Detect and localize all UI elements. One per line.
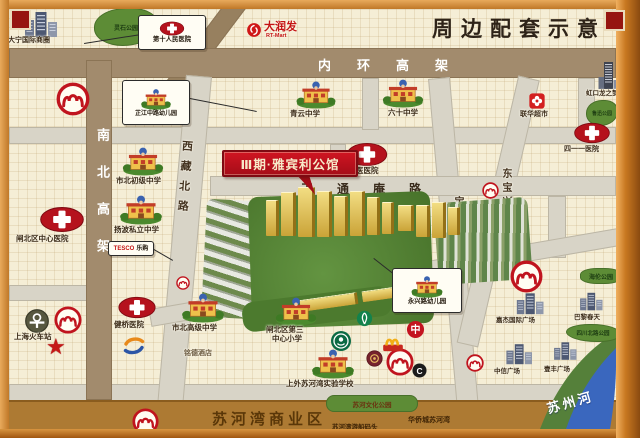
school-icon <box>122 146 164 176</box>
jiajie-plaza-label: 嘉杰国际广场 <box>496 317 535 324</box>
hospital-cross-icon <box>116 296 158 319</box>
gold-tower <box>367 197 380 235</box>
road-street-v1 <box>362 78 379 130</box>
bank-icon-dark: C <box>412 363 427 378</box>
zhongxin-plaza-label: 中信广场 <box>494 368 520 375</box>
tenth-hospital-label: 第十人民医院 <box>153 37 191 43</box>
daning-circle-label: 大宁国际商圈 <box>8 37 50 45</box>
bank-of-china-icon: 中 <box>406 320 425 339</box>
rt-mart-label: 大润发 <box>264 21 297 33</box>
yongxing-kindergarten-label: 永兴路幼儿园 <box>408 299 446 305</box>
corner-square-right <box>604 10 625 31</box>
starbucks-icon <box>330 330 352 352</box>
park-sichuan-north-label: 四川北路公园 <box>576 329 609 337</box>
mcdonalds-icon <box>382 334 404 352</box>
sisu-suhewan-label: 上外苏河湾实验学校 <box>286 380 354 388</box>
no3-primary-label-line1: 闸北区第三 <box>266 326 304 334</box>
suhewan-district-label: 苏河湾商业区 <box>212 408 326 429</box>
frame-top <box>0 0 640 9</box>
school-icon <box>382 78 424 108</box>
metro-icon <box>54 306 82 334</box>
no3-primary-label-line2: 中心小学 <box>272 335 302 343</box>
park-suhe-culture: 苏河文化公园 <box>326 395 418 412</box>
plaza-buildings-icon <box>514 290 548 315</box>
yangbo-private-label: 扬波私立中学 <box>114 226 159 234</box>
gold-tower <box>398 205 414 231</box>
metro-icon <box>466 354 484 372</box>
gold-tower <box>281 192 296 236</box>
school-icon <box>296 80 336 109</box>
gold-tower <box>266 200 279 236</box>
gold-tower <box>416 205 430 237</box>
tesco-callout: TESCO 乐购 <box>108 241 154 256</box>
svg-text:C: C <box>416 366 422 376</box>
bank-icon <box>122 334 146 358</box>
school-icon <box>274 296 318 326</box>
h411-label: 四一一医院 <box>564 146 599 154</box>
lianhua-label: 联华超市 <box>520 111 548 119</box>
metro-icon <box>386 348 414 376</box>
zhijiang-kindergarten-callout: 芷江中路幼儿园 <box>122 80 190 125</box>
metro-icon <box>56 82 90 116</box>
park-suhe-culture-label: 苏河文化公园 <box>353 399 392 409</box>
mingde-hotel-label: 铭德酒店 <box>184 350 212 358</box>
plaza-buildings-icon <box>504 340 536 366</box>
hospital-cross-icon <box>572 122 612 144</box>
property-callout-label: Ⅲ期·雅宾利公馆 <box>241 154 340 173</box>
zhijiang-kindergarten-label: 芷江中路幼儿园 <box>135 111 177 117</box>
park-luxun-label: 鲁迅公园 <box>592 110 612 117</box>
school-icon <box>310 348 356 379</box>
tesco-label: TESCO <box>114 246 135 252</box>
map-canvas: 内环高架 天通庵路 中兴路 南北高架 西藏北路 宝通路 东宝兴路 苏河湾商业区 … <box>0 0 640 438</box>
metro-icon <box>510 260 543 293</box>
corner-square-left <box>10 9 31 30</box>
sixty-middle-label: 六十中学 <box>388 109 418 117</box>
property-callout: Ⅲ期·雅宾利公馆 <box>222 150 358 177</box>
agricultural-bank-icon <box>356 310 373 327</box>
jianqiao-hospital-label: 健桥医院 <box>114 321 144 329</box>
shibei-junior-label: 市北初级中学 <box>116 177 161 185</box>
gold-tower <box>382 202 394 234</box>
park-hailun-label: 海伦公园 <box>589 272 613 281</box>
shibei-senior-label: 市北高级中学 <box>172 324 217 332</box>
metro-icon <box>482 182 499 199</box>
gold-tower <box>317 191 332 237</box>
rt-mart-en-label: RT-Mart <box>266 33 286 39</box>
frame-right <box>616 0 640 438</box>
qingyun-middle-label: 青云中学 <box>290 110 320 118</box>
school-icon <box>118 194 164 225</box>
park-lingshi-label: 灵石公园 <box>114 23 138 32</box>
railway-logo-icon <box>24 308 50 334</box>
frame-left <box>0 0 9 438</box>
gold-tower <box>334 196 348 236</box>
school-icon <box>140 88 172 110</box>
lianhua-supermarket-icon <box>528 92 546 110</box>
road-label-inner-ring: 内环高架 <box>318 55 474 74</box>
printemps-label: 巴黎春天 <box>574 314 600 321</box>
oct-suhewan-label: 华侨城苏河湾 <box>408 415 450 425</box>
plaza-buildings-icon <box>552 336 580 364</box>
yifeng-plaza-label: 壹丰广场 <box>544 366 570 373</box>
gold-tower <box>448 207 460 235</box>
plaza-buildings-icon <box>578 288 606 313</box>
school-icon <box>180 292 226 323</box>
tesco-cn-label: 乐购 <box>136 246 148 252</box>
frame-bottom <box>0 429 640 438</box>
gold-tower <box>432 202 446 238</box>
road-street-h2 <box>9 285 89 301</box>
hospital-cross-icon <box>38 206 86 233</box>
hospital-cross-icon <box>154 21 190 36</box>
page-title: 周边配套示意 <box>432 13 606 43</box>
rt-mart-icon <box>246 22 262 38</box>
metro-icon <box>176 276 190 290</box>
svg-text:中: 中 <box>411 323 421 336</box>
star-icon: ★ <box>46 336 66 358</box>
tenth-hospital-callout: 第十人民医院 <box>138 15 206 50</box>
brand-icon-maroon <box>366 350 383 367</box>
school-icon <box>410 275 444 298</box>
yongxing-kindergarten-callout: 永兴路幼儿园 <box>392 268 462 313</box>
longemont-label: 虹口龙之梦 <box>586 90 619 97</box>
gold-tower <box>350 191 365 236</box>
zhabei-central-hospital-label: 闸北区中心医院 <box>16 235 69 243</box>
